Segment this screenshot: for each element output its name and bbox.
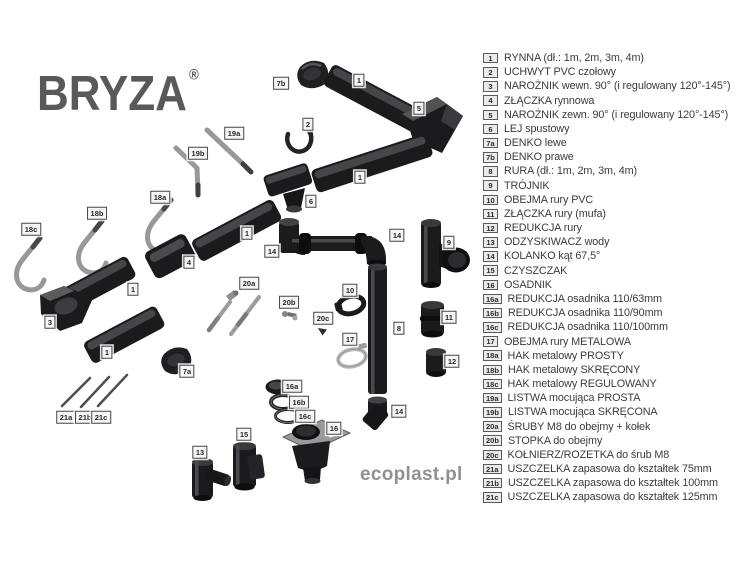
- legend-id-box: 13: [483, 237, 498, 248]
- legend-label: USZCZELKA zapasowa do kształtek 75mm: [508, 463, 712, 475]
- legend-label: DENKO lewe: [504, 137, 567, 149]
- legend-row-3: 3NAROŻNIK wewn. 90° (i regulowany 120°-1…: [483, 79, 748, 93]
- legend-label: LISTWA mocująca PROSTA: [508, 392, 641, 404]
- legend-row-11: 11ZŁĄCZKA rury (mufa): [483, 207, 748, 221]
- part-clamp-metal: [336, 343, 371, 369]
- legend-label: RYNNA (dł.: 1m, 2m, 3m, 4m): [504, 52, 644, 64]
- legend-id-box: 1: [483, 53, 498, 64]
- part-tee: [421, 219, 470, 288]
- legend-row-6: 6LEJ spustowy: [483, 122, 748, 136]
- part-rosette: [318, 328, 327, 336]
- legend-id-box: 16a: [483, 294, 502, 305]
- legend-id-box: 18c: [483, 379, 502, 390]
- legend-id-box: 20c: [483, 450, 502, 461]
- part-gutter-lower: [82, 305, 166, 365]
- legend-row-16c: 16cREDUKCJA osadnika 110/100mm: [483, 320, 748, 334]
- part-hook-adjustable: [17, 238, 44, 290]
- legend-row-16a: 16aREDUKCJA osadnika 110/63mm: [483, 292, 748, 306]
- legend-label: DENKO prawe: [504, 151, 574, 163]
- legend-id-box: 4: [483, 95, 498, 106]
- legend-label: REDUKCJA rury: [504, 222, 582, 234]
- part-strip-straight: [207, 130, 251, 172]
- legend-label: ŚRUBY M8 do obejmy + kołek: [508, 421, 651, 433]
- legend-row-16b: 16bREDUKCJA osadnika 110/90mm: [483, 306, 748, 320]
- legend-id-box: 8: [483, 166, 498, 177]
- part-settler-reduction-100: [276, 410, 301, 423]
- legend-label: KOLANKO kąt 67,5°: [504, 250, 600, 262]
- legend-row-18b: 18bHAK metalowy SKRĘCONY: [483, 363, 748, 377]
- legend-id-box: 2: [483, 67, 498, 78]
- legend-label: USZCZELKA zapasowa do kształtek 100mm: [508, 477, 718, 489]
- legend-row-21c: 21cUSZCZELKA zapasowa do kształtek 125mm: [483, 490, 748, 504]
- legend-label: HAK metalowy SKRĘCONY: [508, 364, 640, 376]
- part-end-cap-left: [161, 347, 191, 374]
- legend-row-19b: 19bLISTWA mocująca SKRĘCONA: [483, 405, 748, 419]
- part-elbow-bottom: [361, 397, 389, 432]
- legend-label: UCHWYT PVC czołowy: [504, 66, 616, 78]
- part-clamp-pvc: [333, 294, 365, 318]
- legend-id-box: 19a: [483, 393, 502, 404]
- legend-id-box: 17: [483, 336, 498, 347]
- legend-row-16: 16OSADNIK: [483, 278, 748, 292]
- legend-id-box: 12: [483, 223, 498, 234]
- legend-label: NAROŻNIK zewn. 90° (i regulowany 120°-14…: [504, 109, 728, 121]
- legend-label: LISTWA mocująca SKRĘCONA: [508, 406, 658, 418]
- legend-row-9: 9TRÓJNIK: [483, 179, 748, 193]
- legend-label: HAK metalowy REGULOWANY: [508, 378, 657, 390]
- legend-id-box: 20a: [483, 421, 502, 432]
- legend-id-box: 18b: [483, 365, 502, 376]
- legend-row-7b: 7bDENKO prawe: [483, 150, 748, 164]
- legend-row-12: 12REDUKCJA rury: [483, 221, 748, 235]
- legend-row-2: 2UCHWYT PVC czołowy: [483, 65, 748, 79]
- legend-id-box: 7b: [483, 152, 498, 163]
- part-clamp-foot: [282, 311, 298, 321]
- legend-id-box: 19b: [483, 407, 502, 418]
- legend-label: TRÓJNIK: [504, 180, 550, 192]
- legend-id-box: 6: [483, 124, 498, 135]
- legend-id-box: 21c: [483, 492, 502, 503]
- part-gutter-mid: [190, 198, 282, 262]
- legend-row-20a: 20aŚRUBY M8 do obejmy + kołek: [483, 419, 748, 433]
- legend-row-14: 14KOLANKO kąt 67,5°: [483, 249, 748, 263]
- legend-id-box: 10: [483, 195, 498, 206]
- legend-label: KOŁNIERZ/ROZETKA do śrub M8: [508, 449, 670, 461]
- brand-logo: BRYZA®: [37, 66, 199, 122]
- legend-row-18a: 18aHAK metalowy PROSTY: [483, 349, 748, 363]
- legend-row-18c: 18cHAK metalowy REGULOWANY: [483, 377, 748, 391]
- catalog-page: 7b15219a19b118a618b18c114914420a11020b11…: [0, 0, 750, 562]
- legend-row-19a: 19aLISTWA mocująca PROSTA: [483, 391, 748, 405]
- legend-label: ODZYSKIWACZ wody: [504, 236, 609, 248]
- legend-row-4: 4ZŁĄCZKA rynnowa: [483, 94, 748, 108]
- legend-row-13: 13ODZYSKIWACZ wody: [483, 235, 748, 249]
- legend-id-box: 15: [483, 265, 498, 276]
- legend-label: ZŁĄCZKA rynnowa: [504, 95, 594, 107]
- part-downpipe: [368, 264, 387, 395]
- part-settler-reduction-63: [266, 380, 291, 395]
- legend-label: REDUKCJA osadnika 110/90mm: [508, 307, 662, 319]
- part-settler-reduction-90: [271, 395, 295, 409]
- legend-id-box: 16c: [483, 322, 502, 333]
- legend-id-box: 7a: [483, 138, 498, 149]
- part-pipe-reduction: [426, 348, 446, 377]
- legend-row-8: 8RURA (dł.: 1m, 2m, 3m, 4m): [483, 164, 748, 178]
- legend-label: OSADNIK: [504, 279, 552, 291]
- part-gaskets: [62, 375, 127, 407]
- legend-label: USZCZELKA zapasowa do kształtek 125mm: [508, 491, 718, 503]
- legend-label: OBEJMA rury METALOWA: [504, 336, 631, 348]
- legend-label: REDUKCJA osadnika 110/63mm: [508, 293, 662, 305]
- legend-row-17: 17OBEJMA rury METALOWA: [483, 334, 748, 348]
- part-cleanout: [233, 442, 265, 491]
- part-gutter-bracket: [287, 128, 311, 152]
- brand-logo-text: BRYZA: [37, 67, 187, 121]
- legend-id-box: 21a: [483, 464, 502, 475]
- legend-id-box: 16: [483, 280, 498, 291]
- part-hook-twisted: [79, 221, 106, 273]
- legend-id-box: 16b: [483, 308, 502, 319]
- legend-label: STOPKA do obejmy: [508, 435, 602, 447]
- legend-row-20b: 20bSTOPKA do obejmy: [483, 434, 748, 448]
- legend-id-box: 20b: [483, 435, 502, 446]
- part-anchor-screws: [209, 290, 259, 334]
- part-strip-twisted: [176, 148, 198, 195]
- legend-id-box: 3: [483, 81, 498, 92]
- legend-id-box: 9: [483, 180, 498, 191]
- legend-label: ZŁĄCZKA rury (mufa): [504, 208, 606, 220]
- part-water-collector: [192, 458, 232, 501]
- part-pipe-horizontal: [292, 233, 372, 254]
- part-pipe-coupler: [420, 301, 445, 338]
- legend-id-box: 14: [483, 251, 498, 262]
- legend-row-1: 1RYNNA (dł.: 1m, 2m, 3m, 4m): [483, 51, 748, 65]
- legend-label: OBEJMA rury PVC: [504, 194, 593, 206]
- part-gutter-right: [310, 133, 433, 194]
- legend-label: REDUKCJA osadnika 110/100mm: [508, 321, 668, 333]
- legend-id-box: 21b: [483, 478, 502, 489]
- legend-label: LEJ spustowy: [504, 123, 569, 135]
- legend-row-5: 5NAROŻNIK zewn. 90° (i regulowany 120°-1…: [483, 108, 748, 122]
- legend-label: HAK metalowy PROSTY: [508, 350, 624, 362]
- part-settler: [283, 420, 350, 484]
- legend-row-21a: 21aUSZCZELKA zapasowa do kształtek 75mm: [483, 462, 748, 476]
- legend-label: NAROŻNIK wewn. 90° (i regulowany 120°-14…: [504, 80, 730, 92]
- registered-mark: ®: [189, 66, 199, 83]
- legend-id-box: 18a: [483, 350, 502, 361]
- legend-list: 1RYNNA (dł.: 1m, 2m, 3m, 4m)2UCHWYT PVC …: [483, 51, 748, 505]
- legend-label: RURA (dł.: 1m, 2m, 3m, 4m): [504, 165, 637, 177]
- legend-id-box: 11: [483, 209, 498, 220]
- legend-row-21b: 21bUSZCZELKA zapasowa do kształtek 100mm: [483, 476, 748, 490]
- legend-row-15: 15CZYSZCZAK: [483, 264, 748, 278]
- legend-row-7a: 7aDENKO lewe: [483, 136, 748, 150]
- watermark-text: ecoplast.pl: [360, 464, 463, 486]
- part-end-cap-right: [297, 61, 328, 89]
- part-gutter-connector: [143, 232, 198, 280]
- legend-row-10: 10OBEJMA rury PVC: [483, 193, 748, 207]
- legend-id-box: 5: [483, 110, 498, 121]
- legend-row-20c: 20cKOŁNIERZ/ROZETKA do śrub M8: [483, 448, 748, 462]
- legend-label: CZYSZCZAK: [504, 265, 567, 277]
